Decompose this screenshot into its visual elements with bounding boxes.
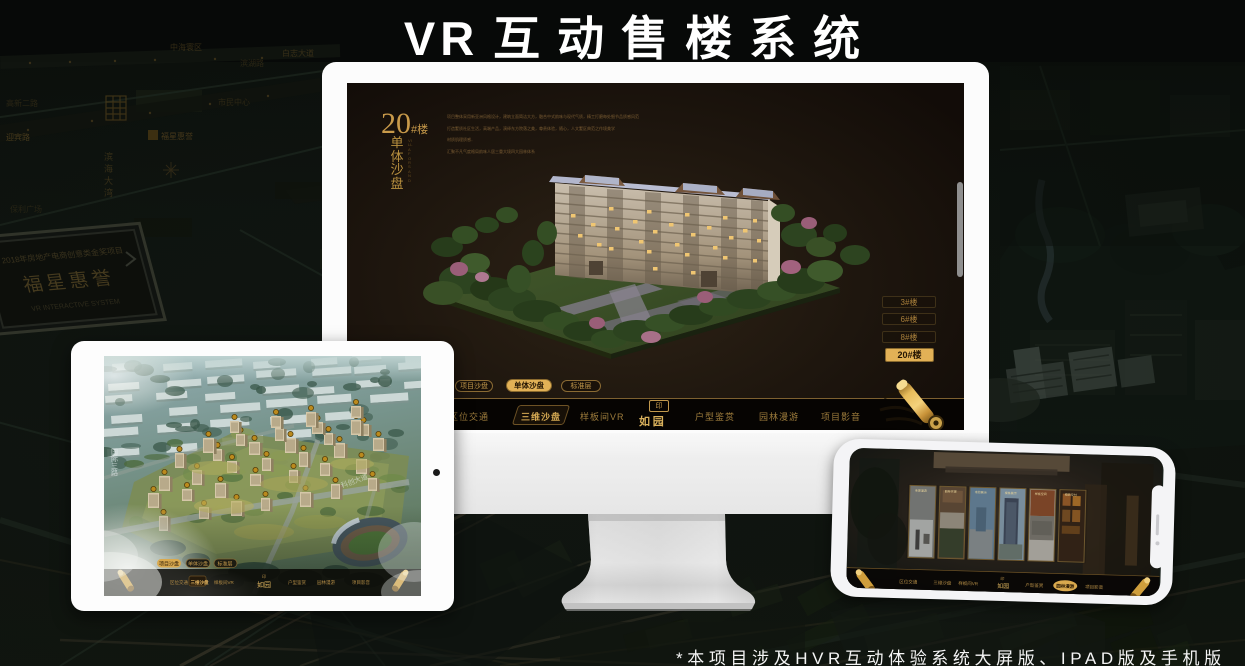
svg-text:区位交通: 区位交通 bbox=[170, 579, 188, 586]
svg-text:迎宾路: 迎宾路 bbox=[6, 132, 30, 142]
svg-text:保利广场: 保利广场 bbox=[10, 204, 42, 214]
svg-text:湾: 湾 bbox=[104, 187, 113, 198]
svg-text:户型鉴赏: 户型鉴赏 bbox=[288, 579, 306, 586]
svg-text:样板间VR: 样板间VR bbox=[214, 579, 235, 586]
svg-text:样板空间: 样板空间 bbox=[1035, 491, 1047, 496]
svg-text:项目展示: 项目展示 bbox=[975, 489, 987, 494]
svg-text:印: 印 bbox=[262, 573, 266, 579]
svg-text:国际三路: 国际三路 bbox=[111, 448, 119, 477]
svg-text:全景漫游: 全景漫游 bbox=[915, 488, 927, 493]
svg-text:项目沙盘: 项目沙盘 bbox=[159, 561, 179, 568]
svg-text:标准层: 标准层 bbox=[217, 561, 232, 568]
svg-text:如园: 如园 bbox=[257, 580, 271, 589]
svg-text:滨: 滨 bbox=[104, 151, 113, 162]
svg-text:单体沙盘: 单体沙盘 bbox=[188, 561, 208, 568]
svg-text:园林实景: 园林实景 bbox=[945, 488, 957, 493]
svg-text:项目影音: 项目影音 bbox=[352, 579, 370, 586]
svg-text:三维沙盘: 三维沙盘 bbox=[191, 579, 209, 586]
svg-text:精装交付: 精装交付 bbox=[1065, 492, 1077, 497]
svg-text:园林漫游: 园林漫游 bbox=[317, 579, 335, 586]
svg-text:大: 大 bbox=[104, 175, 113, 186]
svg-text:福星惠誉: 福星惠誉 bbox=[161, 131, 193, 141]
svg-text:海: 海 bbox=[104, 163, 113, 174]
svg-text:市民中心: 市民中心 bbox=[218, 97, 250, 107]
svg-text:印: 印 bbox=[1000, 575, 1004, 581]
svg-text:高新二路: 高新二路 bbox=[6, 98, 38, 108]
svg-text:楼栋展示: 楼栋展示 bbox=[1005, 490, 1017, 495]
